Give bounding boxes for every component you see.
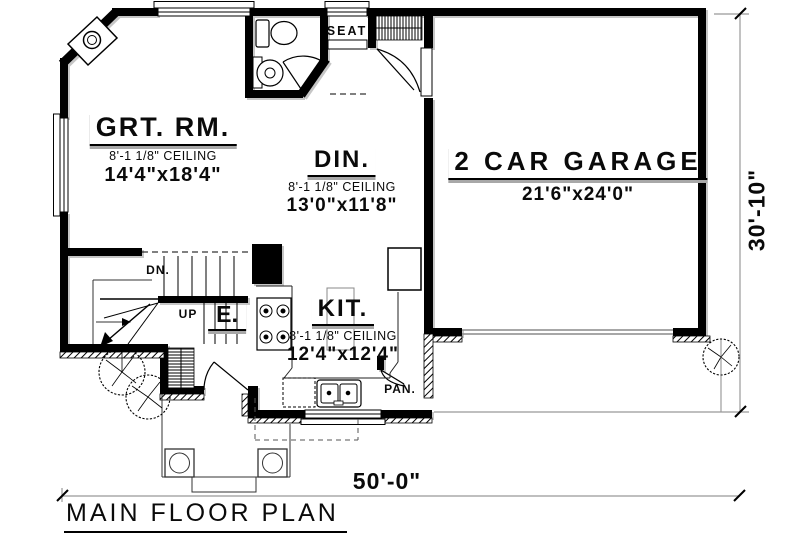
garage-entry-door (421, 48, 432, 96)
entry-name: E. (208, 301, 246, 331)
overall-depth-dimension: 30'-10" (744, 169, 771, 251)
floor-plan-sheet: GRT. RM. 8'-1 1/8" CEILING 14'4"x18'4" D… (0, 0, 800, 533)
sheet-title: MAIN FLOOR PLAN (64, 499, 347, 533)
window-seat-bench (328, 40, 367, 49)
front-door (204, 362, 248, 390)
seat-label: SEAT (327, 24, 367, 38)
kitchen-ceiling: 8'-1 1/8" CEILING (287, 329, 399, 343)
garage-name: 2 CAR GARAGE (448, 146, 707, 180)
porch (162, 394, 358, 492)
dishwasher-outline (283, 378, 315, 407)
overall-width-dimension: 50'-0" (353, 468, 421, 495)
toilet-icon (256, 20, 269, 47)
floor-plan-drawing (0, 0, 800, 533)
pantry-label: PAN. (384, 382, 416, 396)
porch-column-icon (263, 453, 283, 473)
tree-icon (703, 339, 739, 412)
kitchen-name: KIT. (312, 295, 375, 326)
hall-closet-door (377, 48, 432, 96)
stairs-down-label: DN. (146, 263, 170, 277)
fridge-icon (388, 248, 421, 290)
kitchen-window-sill (301, 419, 385, 425)
great-room-window-sill (154, 2, 254, 9)
range-icon (257, 298, 291, 350)
porch-step (192, 477, 256, 492)
bathroom-fixtures (253, 20, 297, 88)
toilet-bowl-icon (271, 22, 297, 45)
landscaping (99, 339, 739, 419)
room-label-dining: DIN. 8'-1 1/8" CEILING 13'0"x11'8" (287, 146, 398, 217)
great-room-size: 14'4"x18'4" (90, 164, 237, 187)
dining-size: 13'0"x11'8" (287, 195, 398, 217)
kitchen-sink-icon (317, 380, 361, 407)
great-room-ceiling: 8'-1 1/8" CEILING (90, 149, 237, 163)
dining-name: DIN. (308, 146, 376, 177)
room-label-great-room: GRT. RM. 8'-1 1/8" CEILING 14'4"x18'4" (90, 112, 237, 187)
seat-window-sill (325, 2, 369, 9)
sheet-title-wrap: MAIN FLOOR PLAN (64, 499, 347, 533)
dining-ceiling: 8'-1 1/8" CEILING (287, 180, 398, 194)
garage-door-line (462, 330, 673, 334)
room-label-entry: E. (208, 301, 246, 331)
left-window-sill (54, 114, 61, 216)
kitchen-size: 12'4"x12'4" (287, 344, 399, 366)
stairs-up-label: UP (179, 307, 198, 321)
great-room-name: GRT. RM. (90, 112, 237, 146)
room-label-garage: 2 CAR GARAGE 21'6"x24'0" (448, 146, 707, 206)
garage-size: 21'6"x24'0" (448, 184, 707, 206)
room-label-kitchen: KIT. 8'-1 1/8" CEILING 12'4"x12'4" (287, 295, 399, 366)
porch-column-icon (170, 453, 190, 473)
